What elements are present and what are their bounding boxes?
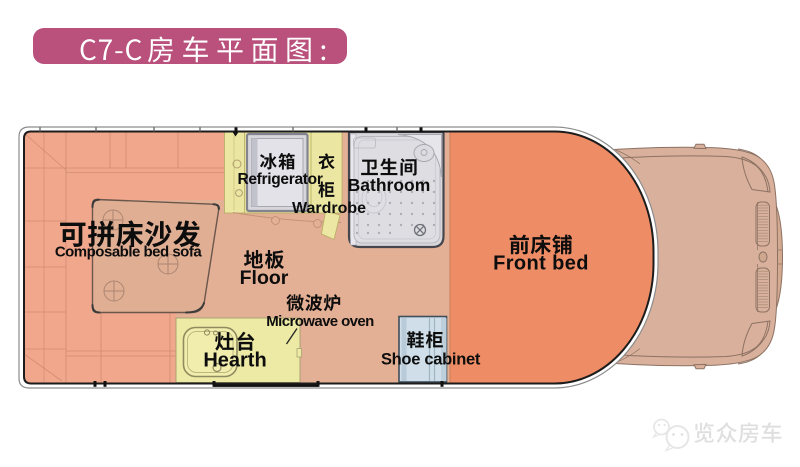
svg-text:Microwave oven: Microwave oven	[266, 313, 374, 330]
svg-text:Front bed: Front bed	[493, 253, 589, 275]
svg-text:Wardrobe: Wardrobe	[292, 200, 366, 217]
svg-text:Floor: Floor	[240, 267, 289, 289]
svg-text:Bathroom: Bathroom	[348, 175, 431, 195]
svg-text:Composable bed sofa: Composable bed sofa	[55, 244, 203, 261]
svg-text:Hearth: Hearth	[203, 350, 266, 372]
svg-text:Refrigerator: Refrigerator	[237, 171, 322, 188]
svg-text:Shoe cabinet: Shoe cabinet	[381, 351, 481, 369]
